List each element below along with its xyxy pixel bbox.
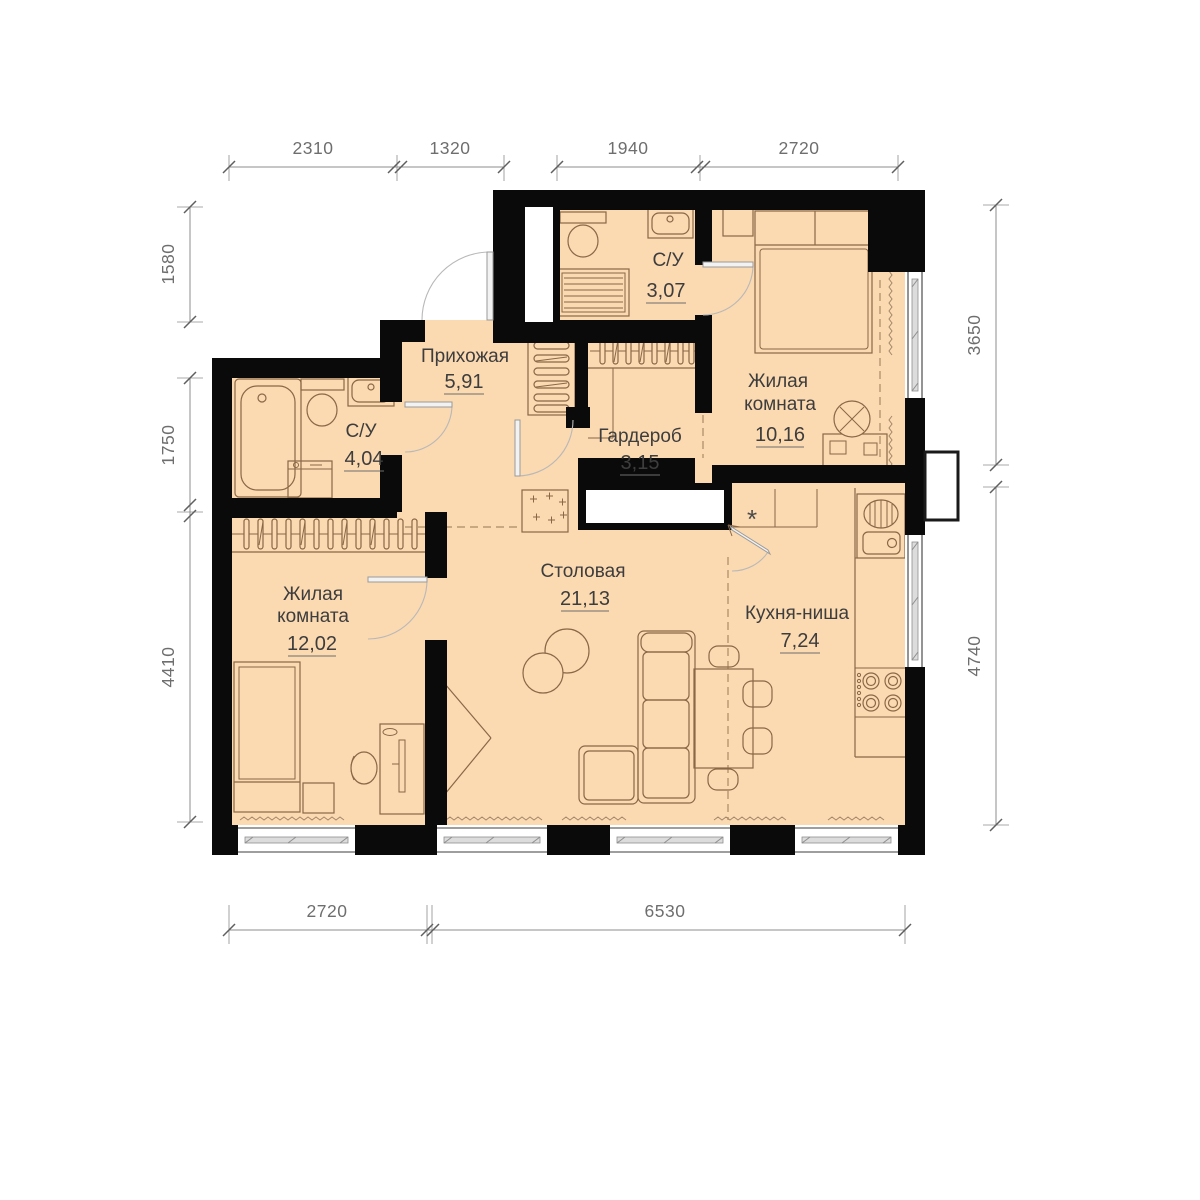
floor-plan-canvas: С/У 3,07 Жилая комната 10,16 Прихожая 5,… — [0, 0, 1200, 1200]
svg-text:Столовая: Столовая — [541, 561, 626, 582]
svg-text:комната: комната — [744, 394, 816, 415]
window-icon — [437, 825, 547, 856]
svg-text:3,07: 3,07 — [647, 280, 686, 302]
svg-text:С/У: С/У — [345, 421, 377, 442]
svg-text:1940: 1940 — [608, 138, 649, 158]
svg-text:6530: 6530 — [645, 901, 686, 921]
window-icon — [610, 825, 730, 856]
svg-text:7,24: 7,24 — [781, 630, 820, 652]
svg-text:1580: 1580 — [158, 244, 178, 285]
svg-text:2720: 2720 — [779, 138, 820, 158]
window-icon — [905, 272, 925, 398]
svg-text:Гардероб: Гардероб — [598, 426, 682, 447]
chair-icon — [351, 752, 377, 784]
svg-text:2720: 2720 — [307, 901, 348, 921]
dimension-left: 1580 1750 4410 — [158, 201, 203, 828]
svg-text:12,02: 12,02 — [287, 633, 337, 655]
svg-text:Жилая: Жилая — [748, 371, 808, 392]
window-icon — [795, 825, 898, 856]
svg-text:1320: 1320 — [430, 138, 471, 158]
svg-text:5,91: 5,91 — [445, 371, 484, 393]
window-icon — [905, 535, 925, 667]
dimension-right: 3650 4740 — [964, 199, 1009, 831]
svg-text:4410: 4410 — [158, 647, 178, 688]
svg-text:Кухня-ниша: Кухня-ниша — [745, 603, 850, 624]
svg-text:10,16: 10,16 — [755, 424, 805, 446]
entrance-door-icon — [422, 252, 493, 320]
dimension-bottom: 2720 6530 — [223, 901, 911, 944]
chair-icon — [834, 401, 870, 437]
dimension-top: 2310 1320 1940 2720 — [223, 138, 904, 181]
svg-text:3650: 3650 — [964, 315, 984, 356]
window-icon — [238, 825, 355, 856]
vent-symbol: * — [747, 504, 757, 534]
svg-text:21,13: 21,13 — [560, 588, 610, 610]
svg-text:С/У: С/У — [652, 250, 684, 271]
svg-text:комната: комната — [277, 606, 349, 627]
svg-text:1750: 1750 — [158, 425, 178, 466]
floor-plan: С/У 3,07 Жилая комната 10,16 Прихожая 5,… — [0, 0, 1200, 1200]
svg-text:4,04: 4,04 — [345, 448, 384, 470]
svg-text:4740: 4740 — [964, 636, 984, 677]
svg-text:3,15: 3,15 — [621, 452, 660, 474]
svg-text:Жилая: Жилая — [283, 584, 343, 605]
svg-text:Прихожая: Прихожая — [421, 346, 509, 367]
exterior-duct — [925, 452, 958, 520]
svg-text:2310: 2310 — [293, 138, 334, 158]
